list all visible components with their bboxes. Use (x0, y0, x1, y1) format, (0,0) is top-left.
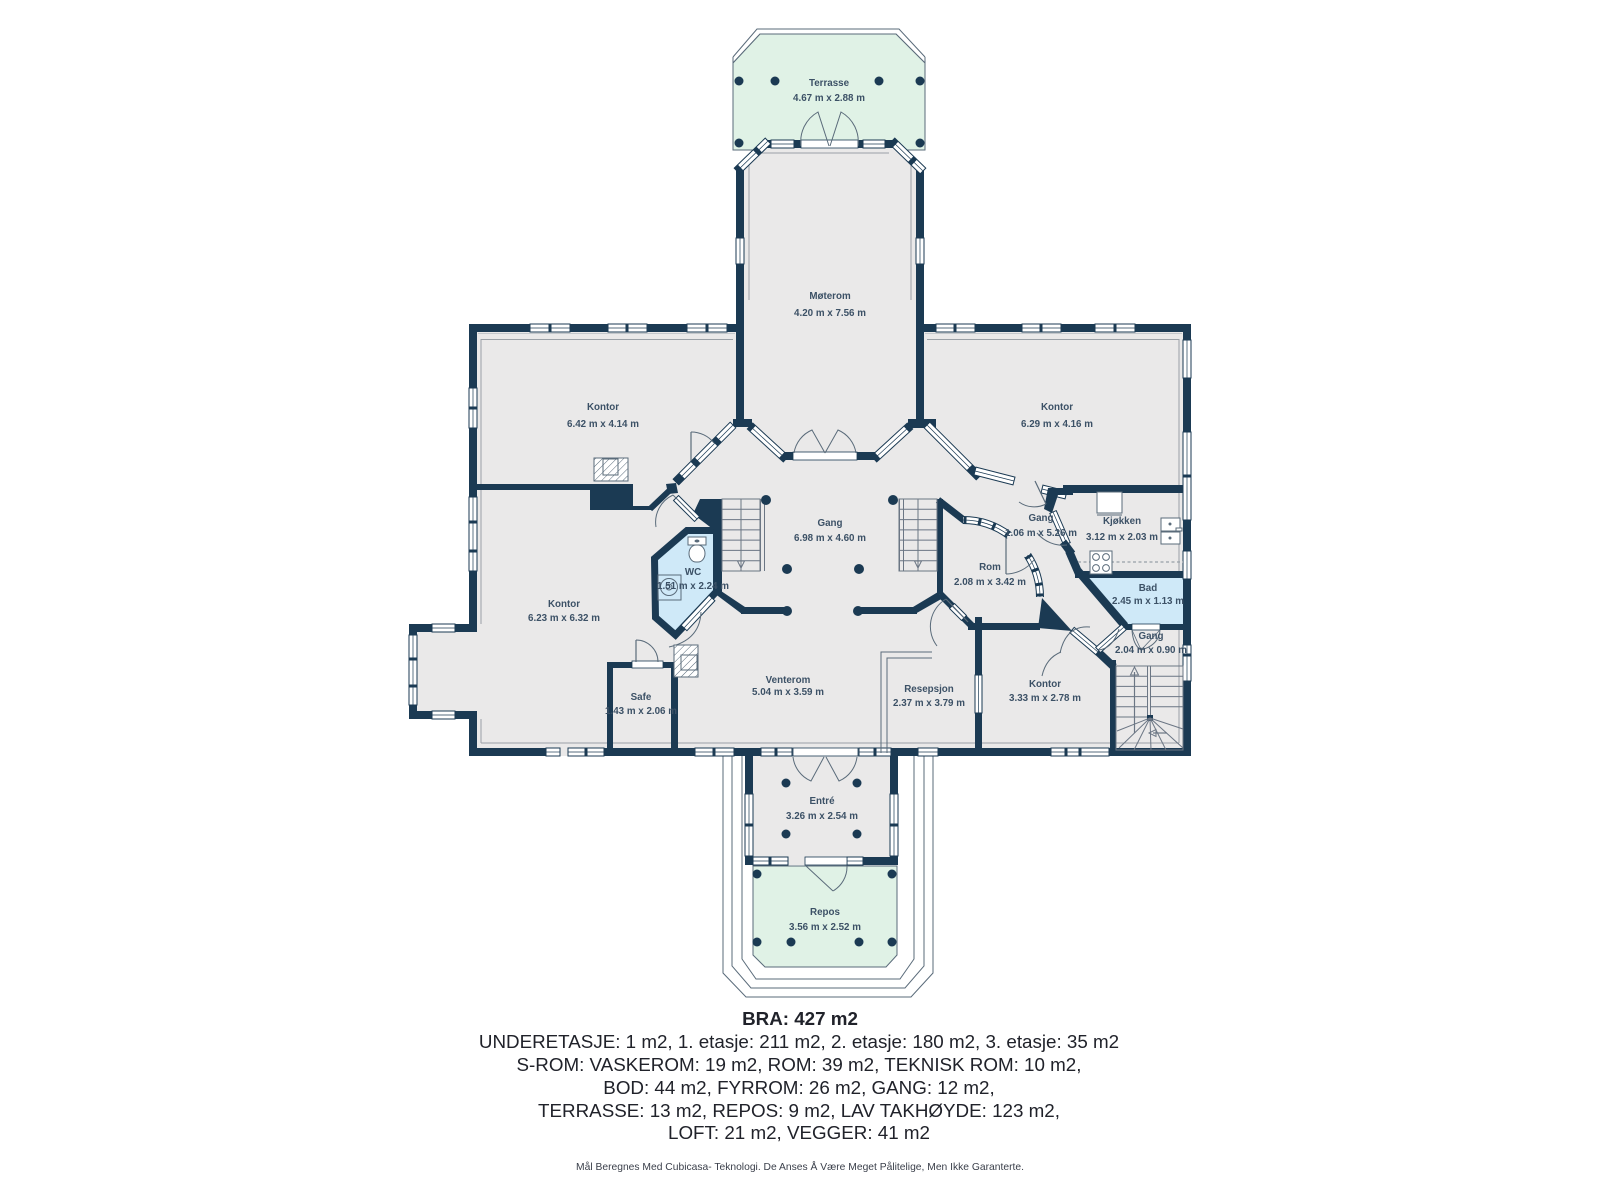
svg-text:BRA: 427 m2: BRA: 427 m2 (742, 1008, 858, 1029)
svg-text:4.67 m x 2.88 m: 4.67 m x 2.88 m (793, 93, 865, 104)
svg-text:1.51 m x 2.24 m: 1.51 m x 2.24 m (657, 581, 729, 592)
svg-text:Gang: Gang (1138, 631, 1163, 642)
svg-text:Venterom: Venterom (766, 675, 811, 686)
svg-text:Mål Beregnes Med Cubicasa- Tek: Mål Beregnes Med Cubicasa- Teknologi. De… (576, 1160, 1024, 1173)
svg-text:6.98 m x 4.60 m: 6.98 m x 4.60 m (794, 533, 866, 544)
svg-text:3.26 m x 2.54 m: 3.26 m x 2.54 m (786, 811, 858, 822)
svg-text:2.45 m x 1.13 m: 2.45 m x 1.13 m (1112, 596, 1184, 607)
svg-text:4.20 m x 7.56 m: 4.20 m x 7.56 m (794, 308, 866, 319)
svg-text:Gang: Gang (1028, 513, 1053, 524)
svg-text:3.33 m x 2.78 m: 3.33 m x 2.78 m (1009, 693, 1081, 704)
svg-text:WC: WC (685, 567, 701, 578)
svg-text:1.43 m x 2.06 m: 1.43 m x 2.06 m (605, 706, 677, 717)
svg-text:3.56 m x 2.52 m: 3.56 m x 2.52 m (789, 922, 861, 933)
svg-text:S-ROM: VASKEROM: 19 m2, ROM: 3: S-ROM: VASKEROM: 19 m2, ROM: 39 m2, TEKN… (517, 1054, 1082, 1075)
svg-text:3.12 m x 2.03 m: 3.12 m x 2.03 m (1086, 532, 1158, 543)
svg-text:Entré: Entré (809, 796, 835, 807)
svg-text:Kontor: Kontor (587, 402, 619, 413)
svg-text:5.04 m x 3.59 m: 5.04 m x 3.59 m (752, 687, 824, 698)
svg-text:2.04 m x 0.90 m: 2.04 m x 0.90 m (1115, 645, 1187, 656)
svg-text:Kjøkken: Kjøkken (1103, 516, 1141, 527)
svg-text:Terrasse: Terrasse (809, 78, 850, 89)
svg-text:Kontor: Kontor (1041, 402, 1073, 413)
svg-text:TERRASSE: 13 m2, REPOS: 9 m2,: TERRASSE: 13 m2, REPOS: 9 m2, LAV TAKHØY… (538, 1100, 1060, 1121)
svg-text:6.29 m x 4.16 m: 6.29 m x 4.16 m (1021, 419, 1093, 430)
svg-text:Rom: Rom (979, 562, 1001, 573)
svg-text:LOFT: 21 m2, VEGGER: 41 m2: LOFT: 21 m2, VEGGER: 41 m2 (668, 1122, 930, 1143)
svg-text:Bad: Bad (1139, 583, 1158, 594)
svg-text:Resepsjon: Resepsjon (904, 684, 954, 695)
svg-text:Safe: Safe (631, 692, 652, 703)
svg-text:BOD: 44 m2, FYRROM: 26 m2, GAN: BOD: 44 m2, FYRROM: 26 m2, GANG: 12 m2, (603, 1077, 994, 1098)
svg-text:6.42 m x 4.14 m: 6.42 m x 4.14 m (567, 419, 639, 430)
svg-text:Kontor: Kontor (1029, 679, 1061, 690)
svg-text:6.23 m x 6.32 m: 6.23 m x 6.32 m (528, 613, 600, 624)
svg-text:1.06 m x 5.26 m: 1.06 m x 5.26 m (1005, 528, 1077, 539)
svg-text:UNDERETASJE: 1 m2, 1. etasje:: UNDERETASJE: 1 m2, 1. etasje: 211 m2, 2.… (479, 1031, 1119, 1052)
svg-text:2.37 m x 3.79 m: 2.37 m x 3.79 m (893, 698, 965, 709)
svg-text:Kontor: Kontor (548, 599, 580, 610)
svg-text:Repos: Repos (810, 907, 840, 918)
svg-text:2.08 m x 3.42 m: 2.08 m x 3.42 m (954, 577, 1026, 588)
svg-text:Møterom: Møterom (809, 291, 851, 302)
svg-text:Gang: Gang (817, 518, 842, 529)
